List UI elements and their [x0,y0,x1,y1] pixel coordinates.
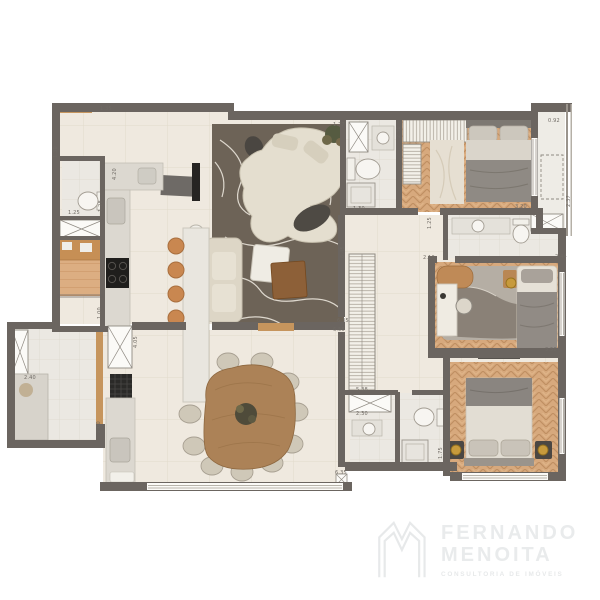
dimension-label: 6.35 [337,318,349,324]
second-bathroom [352,420,382,436]
dimension-label: 6.35 [335,470,347,476]
service-counter [12,374,48,440]
toilet [78,192,98,210]
dining-door-threshold [258,323,294,331]
dimension-label: 4.20 [112,168,118,180]
closet [403,120,467,142]
dimension-label: 0.92 [548,118,560,124]
dimension-label: 1.77 [333,122,345,128]
table-plant [235,403,257,425]
kitchen-island [183,228,209,402]
dimension-label: 2.00 [96,421,102,433]
brand-name-line1: FERNANDO [441,522,578,544]
washbasin [472,220,484,232]
headboard [464,458,534,466]
dimension-label: 1.30 [53,146,59,158]
lamp-left [451,445,461,455]
single-bed [517,266,557,350]
dimension-label: 3.20 [515,204,527,210]
dimension-label: 2.10 [423,255,435,261]
dimension-label: 2.37 [566,195,572,207]
dimension-label: 2.40 [24,375,36,381]
shaft-closet [108,326,132,368]
washbasin [377,132,389,144]
dining-table [204,365,295,469]
hall-closet-2 [349,394,391,412]
master-bed [464,378,534,466]
toilet [414,408,434,426]
brand-tagline: CONSULTORIA DE IMÓVEIS [441,571,578,578]
brand-name-line2: MENOITA [441,544,578,566]
dimension-label: 1.35 [100,106,112,112]
toilet [356,159,380,179]
dimension-label: 6.55 [333,327,345,333]
toilet [513,225,529,243]
dimension-label: 5.38 [356,387,368,393]
dimension-label: 2.30 [356,411,368,417]
cooktop [106,258,129,288]
floor-plan-page: 1.351.301.251.284.202.401.002.004.056.45… [0,0,600,600]
dimension-label: 1.75 [438,447,444,459]
dimension-label: 1.25 [427,217,433,229]
dimension-label: 2.30 [396,126,402,138]
dimension-label: 2.44 [555,254,567,260]
tv-screen [192,163,200,201]
dimension-label: 1.30 [353,206,365,212]
maid-room [57,238,103,260]
decor-plant [19,383,33,397]
ac-grate [110,374,132,398]
lamp [506,278,516,288]
washbasin [363,423,375,435]
bedroom-rug [430,140,464,204]
desk [437,284,457,336]
dimension-label: 1.00 [97,307,103,319]
kitchen-sink [107,198,125,224]
dimension-label: 6.45 [340,246,346,258]
entry-closet [60,220,103,238]
brand-name: FERNANDO MENOITA CONSULTORIA DE IMÓVEIS [441,522,578,578]
dimension-label: 4.05 [133,336,139,348]
brand-monogram-icon [372,512,430,588]
dimension-label: 1.28 [98,200,104,212]
dimension-label: 1.25 [68,210,80,216]
lamp-right [538,445,548,455]
closet-2 [403,144,421,184]
dimension-label: 3.50 [545,347,557,353]
bar-sink [110,438,130,462]
service-door [96,326,103,424]
brand-logo: FERNANDO MENOITA CONSULTORIA DE IMÓVEIS [372,506,594,594]
desk-chair [456,298,472,314]
